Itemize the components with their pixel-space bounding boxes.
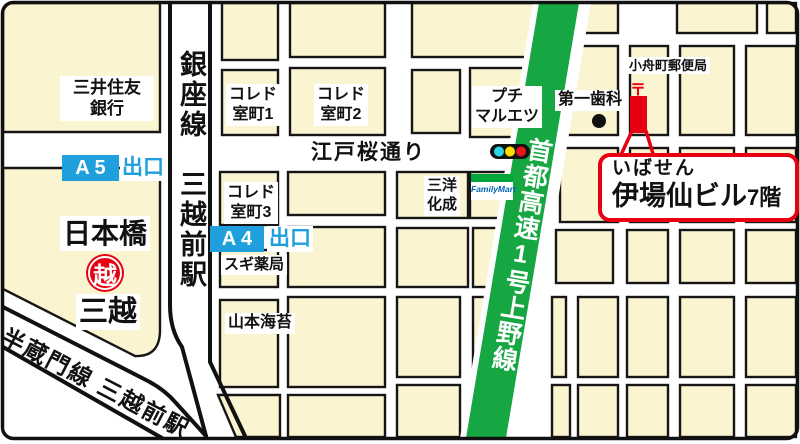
city-block [746, 297, 796, 377]
nihombashi-label: 日本橋 [60, 216, 150, 251]
destination-building [630, 96, 647, 133]
daiichi-dental-label: 第一歯科 [555, 90, 625, 111]
city-block [288, 172, 385, 215]
city-block [680, 297, 734, 377]
city-block [677, 3, 757, 33]
city-block [412, 70, 460, 133]
city-block [412, 3, 538, 57]
coredo-muromachi-2-label: コレド 室町2 [314, 84, 368, 126]
exit-a5-label: 出口 [120, 155, 166, 181]
city-block [288, 297, 385, 387]
mitsukoshi-label: 三越 [76, 294, 140, 330]
city-block [552, 297, 566, 377]
sanyo-kasei-label: 三洋 化成 [424, 176, 460, 216]
city-block [290, 3, 385, 57]
exit-a5-badge: A 5 [62, 155, 119, 181]
city-block [397, 228, 468, 287]
post-office-mark: 〒 [630, 76, 646, 100]
dental-location-dot [592, 114, 606, 128]
sugi-pharmacy-label: スギ薬局 [221, 255, 287, 275]
destination-callout: いばせん 伊場仙ビル7階 [598, 153, 799, 222]
smbc-bank-label: 三井住友 銀行 [60, 76, 154, 121]
destination-furigana: いばせん [612, 159, 795, 180]
kofunacho-post-office-label: 小舟町郵便局 [626, 57, 710, 74]
city-block [627, 230, 668, 283]
familymart-logo: FamilyMart [471, 174, 513, 200]
city-block [578, 385, 618, 437]
city-block [288, 395, 385, 437]
ginza-line-station-label: 銀座線 三越前駅 [172, 50, 211, 380]
familymart-green-bar [471, 174, 513, 182]
city-block [397, 385, 460, 437]
city-block [397, 297, 460, 377]
petit-maruetsu-label: プチ マルエツ [472, 86, 542, 128]
city-block [767, 3, 796, 33]
city-block [222, 3, 278, 60]
destination-name: 伊場仙ビル [612, 181, 747, 211]
city-block [746, 230, 796, 283]
city-block [680, 385, 734, 437]
mitsukoshi-logo: 越 [86, 254, 124, 292]
destination-floor: 7階 [747, 185, 781, 210]
coredo-muromachi-3-label: コレド 室町3 [224, 182, 278, 224]
city-block [627, 385, 668, 437]
city-block [680, 230, 734, 283]
city-block [627, 297, 668, 377]
coredo-muromachi-1-label: コレド 室町1 [226, 84, 280, 126]
yamamoto-nori-label: 山本海苔 [225, 313, 295, 334]
city-block [746, 46, 796, 135]
edo-sakura-street-label: 江戸桜通り [308, 140, 429, 167]
access-map: 銀座線 三越前駅 半蔵門線 三越前駅 首都高速1号上野線 江戸桜通り A 5 出… [0, 0, 800, 441]
city-block [746, 385, 796, 437]
city-block [578, 297, 618, 377]
city-block [552, 385, 570, 437]
city-block [556, 230, 613, 283]
exit-a4-badge: A 4 [210, 226, 264, 252]
exit-a4-label: 出口 [267, 226, 313, 252]
